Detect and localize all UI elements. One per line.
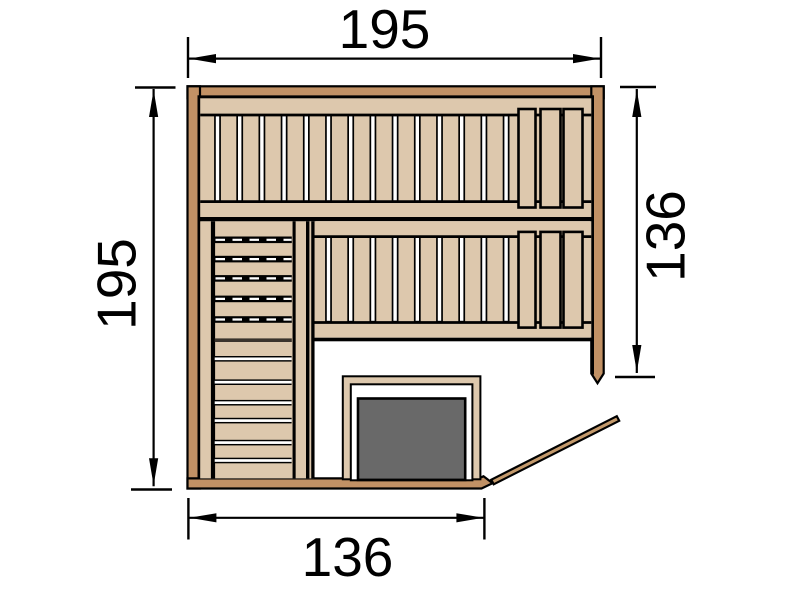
- svg-text:136: 136: [302, 526, 394, 588]
- svg-text:195: 195: [339, 0, 431, 60]
- svg-text:195: 195: [86, 238, 148, 330]
- svg-text:136: 136: [635, 190, 697, 282]
